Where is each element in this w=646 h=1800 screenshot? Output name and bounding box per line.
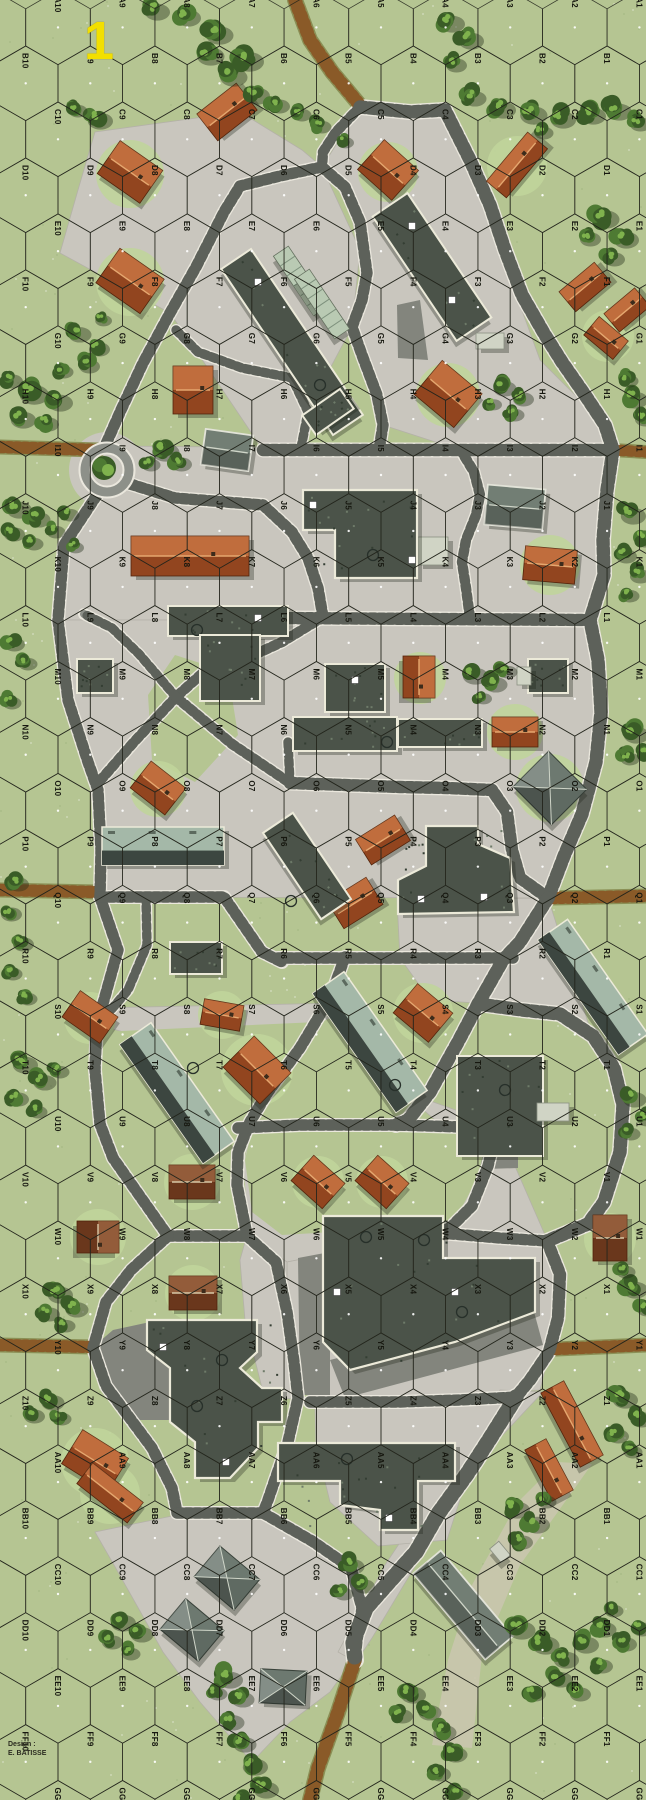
- hex-label-W5: W5: [376, 1228, 385, 1241]
- hex-label-E1: E1: [634, 221, 643, 232]
- hex-label-Q1: Q1: [634, 892, 643, 904]
- hex-label-R4: R4: [408, 948, 417, 959]
- hex-label-O8: O8: [182, 780, 191, 792]
- hex-label-X4: X4: [408, 1284, 417, 1295]
- hex-label-N1: N1: [602, 724, 611, 735]
- hex-label-U10: U10: [53, 1116, 62, 1132]
- hex-label-F6: F6: [279, 277, 288, 287]
- hex-label-U9: U9: [118, 1116, 127, 1127]
- hex-label-Q8: Q8: [182, 892, 191, 904]
- hex-label-CC4: CC4: [441, 1564, 450, 1581]
- hex-label-G3: G3: [505, 333, 514, 345]
- hex-label-V10: V10: [21, 1172, 30, 1187]
- hex-label-BB7: BB7: [215, 1508, 224, 1525]
- board-number: 1: [84, 14, 114, 68]
- hex-label-G1: G1: [634, 333, 643, 345]
- hex-label-DD10: DD10: [21, 1620, 30, 1642]
- hex-label-EE7: EE7: [247, 1676, 256, 1692]
- hex-label-AA4: AA4: [441, 1452, 450, 1469]
- hex-label-FF5: FF5: [344, 1732, 353, 1747]
- hex-label-Q6: Q6: [311, 892, 320, 904]
- hex-label-Q3: Q3: [505, 892, 514, 904]
- hex-label-O3: O3: [505, 780, 514, 792]
- hex-label-Q9: Q9: [118, 892, 127, 904]
- hex-label-C7: C7: [247, 109, 256, 120]
- hex-label-X9: X9: [85, 1284, 94, 1295]
- hex-label-Y2: Y2: [570, 1340, 579, 1351]
- hex-label-P4: P4: [408, 836, 417, 847]
- hex-label-BB2: BB2: [538, 1508, 547, 1525]
- hex-label-H4: H4: [408, 389, 417, 400]
- hex-label-BB10: BB10: [21, 1508, 30, 1530]
- hex-label-EE10: EE10: [53, 1676, 62, 1697]
- hex-label-W7: W7: [247, 1228, 256, 1241]
- hex-label-G10: G10: [53, 333, 62, 349]
- hex-label-K10: K10: [53, 557, 62, 573]
- hex-label-K9: K9: [118, 557, 127, 568]
- hex-label-S2: S2: [570, 1004, 579, 1015]
- hex-label-Y7: Y7: [247, 1340, 256, 1351]
- hex-label-AA9: AA9: [118, 1452, 127, 1469]
- hex-label-X3: X3: [473, 1284, 482, 1295]
- hex-label-R2: R2: [538, 948, 547, 959]
- hex-label-T2: T2: [538, 1060, 547, 1070]
- hex-label-AA1: AA1: [634, 1452, 643, 1469]
- hex-label-Q2: Q2: [570, 892, 579, 904]
- hex-label-DD8: DD8: [150, 1620, 159, 1637]
- hex-label-A7: A7: [247, 0, 256, 8]
- hex-label-U7: U7: [247, 1116, 256, 1127]
- hex-label-N2: N2: [538, 724, 547, 735]
- hex-label-Y9: Y9: [118, 1340, 127, 1351]
- hex-label-Y6: Y6: [311, 1340, 320, 1351]
- hex-label-E10: E10: [53, 221, 62, 236]
- hex-label-CC7: CC7: [247, 1564, 256, 1581]
- credit-line-2: E. BATISSE: [8, 1749, 46, 1758]
- hex-label-W4: W4: [441, 1228, 450, 1241]
- hex-label-O5: O5: [376, 780, 385, 792]
- hex-label-DD6: DD6: [279, 1620, 288, 1637]
- hex-label-Z4: Z4: [408, 1396, 417, 1406]
- hex-label-M7: M7: [247, 669, 256, 681]
- hex-label-F1: F1: [602, 277, 611, 287]
- hex-label-D10: D10: [21, 165, 30, 181]
- hex-label-G5: G5: [376, 333, 385, 345]
- hex-label-A8: A8: [182, 0, 191, 8]
- hex-label-I3: I3: [505, 445, 514, 453]
- hex-label-CC10: CC10: [53, 1564, 62, 1586]
- hex-label-C10: C10: [53, 109, 62, 125]
- hex-label-R7: R7: [215, 948, 224, 959]
- hex-label-N7: N7: [215, 724, 224, 735]
- hex-label-D3: D3: [473, 165, 482, 176]
- hex-label-Z5: Z5: [344, 1396, 353, 1406]
- hex-label-T10: T10: [21, 1060, 30, 1075]
- hex-label-V8: V8: [150, 1172, 159, 1183]
- credit-line-1: Design :: [8, 1740, 46, 1749]
- hex-label-K6: K6: [311, 557, 320, 568]
- hex-label-Z10: Z10: [21, 1396, 30, 1411]
- hex-label-L2: L2: [538, 613, 547, 623]
- hex-label-DD7: DD7: [215, 1620, 224, 1637]
- hex-label-B3: B3: [473, 53, 482, 64]
- hex-label-Z2: Z2: [538, 1396, 547, 1406]
- hex-label-S9: S9: [118, 1004, 127, 1015]
- hex-label-D2: D2: [538, 165, 547, 176]
- hex-label-H1: H1: [602, 389, 611, 400]
- hex-label-I6: I6: [311, 445, 320, 453]
- hex-label-V7: V7: [215, 1172, 224, 1183]
- hex-label-EE2: EE2: [570, 1676, 579, 1692]
- hex-label-J2: J2: [538, 501, 547, 511]
- hex-label-W1: W1: [634, 1228, 643, 1241]
- hex-label-X5: X5: [344, 1284, 353, 1295]
- hex-label-H10: H10: [21, 389, 30, 405]
- hex-label-DD5: DD5: [344, 1620, 353, 1637]
- hex-label-P8: P8: [150, 836, 159, 847]
- hex-label-C5: C5: [376, 109, 385, 120]
- hex-label-V1: V1: [602, 1172, 611, 1183]
- hex-label-D9: D9: [85, 165, 94, 176]
- hex-label-GG5: GG5: [376, 1788, 385, 1800]
- hex-label-BB6: BB6: [279, 1508, 288, 1525]
- hex-label-EE1: EE1: [634, 1676, 643, 1692]
- hex-label-M5: M5: [376, 669, 385, 681]
- hex-label-G9: G9: [118, 333, 127, 345]
- hex-label-C6: C6: [311, 109, 320, 120]
- hex-label-BB3: BB3: [473, 1508, 482, 1525]
- hex-label-J5: J5: [344, 501, 353, 511]
- hex-label-F8: F8: [150, 277, 159, 287]
- hex-label-M9: M9: [118, 669, 127, 681]
- hex-label-S8: S8: [182, 1004, 191, 1015]
- hex-label-AA7: AA7: [247, 1452, 256, 1469]
- hex-label-A1: A1: [634, 0, 643, 8]
- hex-grid-layer: [0, 0, 646, 1800]
- hex-label-M6: M6: [311, 669, 320, 681]
- hex-label-F7: F7: [215, 277, 224, 287]
- hex-label-DD3: DD3: [473, 1620, 482, 1637]
- hex-label-Z9: Z9: [85, 1396, 94, 1406]
- hex-label-R3: R3: [473, 948, 482, 959]
- hex-label-A6: A6: [311, 0, 320, 8]
- map-board: A10A9A8A7A6A5A4A3A2A1B10B9B8B7B6B5B4B3B2…: [0, 0, 646, 1800]
- hex-label-B2: B2: [538, 53, 547, 64]
- hex-label-L8: L8: [150, 613, 159, 623]
- hex-label-M8: M8: [182, 669, 191, 681]
- hex-label-D6: D6: [279, 165, 288, 176]
- hex-label-D7: D7: [215, 165, 224, 176]
- hex-label-J6: J6: [279, 501, 288, 511]
- hex-label-D4: D4: [408, 165, 417, 176]
- hex-label-F3: F3: [473, 277, 482, 287]
- hex-label-GG10: GG10: [53, 1788, 62, 1800]
- hex-label-F10: F10: [21, 277, 30, 292]
- hex-label-U6: U6: [311, 1116, 320, 1127]
- hex-label-BB4: BB4: [408, 1508, 417, 1525]
- hex-label-A3: A3: [505, 0, 514, 8]
- hex-label-CC8: CC8: [182, 1564, 191, 1581]
- hex-label-U3: U3: [505, 1116, 514, 1127]
- hex-label-P9: P9: [85, 836, 94, 847]
- hex-label-H8: H8: [150, 389, 159, 400]
- hex-label-B5: B5: [344, 53, 353, 64]
- hex-label-K8: K8: [182, 557, 191, 568]
- hex-label-N9: N9: [85, 724, 94, 735]
- hex-label-L10: L10: [21, 613, 30, 628]
- hex-label-V5: V5: [344, 1172, 353, 1183]
- hex-label-CC1: CC1: [634, 1564, 643, 1581]
- hex-label-C9: C9: [118, 109, 127, 120]
- hex-label-L4: L4: [408, 613, 417, 623]
- hex-label-EE4: EE4: [441, 1676, 450, 1692]
- hex-label-R5: R5: [344, 948, 353, 959]
- hex-label-B7: B7: [215, 53, 224, 64]
- hex-label-AA10: AA10: [53, 1452, 62, 1474]
- hex-label-BB9: BB9: [85, 1508, 94, 1525]
- hex-label-L1: L1: [602, 613, 611, 623]
- hex-label-J4: J4: [408, 501, 417, 511]
- hex-label-W8: W8: [182, 1228, 191, 1241]
- hex-label-C4: C4: [441, 109, 450, 120]
- hex-label-N4: N4: [408, 724, 417, 735]
- hex-label-O9: O9: [118, 780, 127, 792]
- hex-label-G8: G8: [182, 333, 191, 345]
- hex-label-AA8: AA8: [182, 1452, 191, 1469]
- hex-label-FF2: FF2: [538, 1732, 547, 1747]
- hex-label-H5: H5: [344, 389, 353, 400]
- hex-label-F4: F4: [408, 277, 417, 287]
- hex-label-AA3: AA3: [505, 1452, 514, 1469]
- hex-label-W2: W2: [570, 1228, 579, 1241]
- hex-label-J1: J1: [602, 501, 611, 511]
- hex-label-I2: I2: [570, 445, 579, 453]
- hex-label-C3: C3: [505, 109, 514, 120]
- hex-label-K5: K5: [376, 557, 385, 568]
- hex-label-Q4: Q4: [441, 892, 450, 904]
- hex-label-M10: M10: [53, 669, 62, 686]
- hex-label-Z1: Z1: [602, 1396, 611, 1406]
- hex-label-G7: G7: [247, 333, 256, 345]
- hex-label-H2: H2: [538, 389, 547, 400]
- hex-label-F5: F5: [344, 277, 353, 287]
- hex-label-Z7: Z7: [215, 1396, 224, 1406]
- hex-label-J3: J3: [473, 501, 482, 511]
- hex-label-E6: E6: [311, 221, 320, 232]
- hex-label-H7: H7: [215, 389, 224, 400]
- hex-label-W9: W9: [118, 1228, 127, 1241]
- hex-label-O2: O2: [570, 780, 579, 792]
- hex-label-H3: H3: [473, 389, 482, 400]
- hex-label-K3: K3: [505, 557, 514, 568]
- hex-label-L5: L5: [344, 613, 353, 623]
- hex-label-M1: M1: [634, 669, 643, 681]
- hex-label-T3: T3: [473, 1060, 482, 1070]
- hex-label-O7: O7: [247, 780, 256, 792]
- hex-label-X8: X8: [150, 1284, 159, 1295]
- hex-label-B6: B6: [279, 53, 288, 64]
- hex-label-H6: H6: [279, 389, 288, 400]
- map-svg: A10A9A8A7A6A5A4A3A2A1B10B9B8B7B6B5B4B3B2…: [0, 0, 646, 1800]
- hex-label-E7: E7: [247, 221, 256, 232]
- hex-label-V9: V9: [85, 1172, 94, 1183]
- hex-label-I4: I4: [441, 445, 450, 453]
- hex-label-A10: A10: [53, 0, 62, 13]
- hex-label-G6: G6: [311, 333, 320, 345]
- hex-label-X2: X2: [538, 1284, 547, 1295]
- hex-label-Q5: Q5: [376, 892, 385, 904]
- hex-label-M4: M4: [441, 669, 450, 681]
- hex-label-Z6: Z6: [279, 1396, 288, 1406]
- hex-label-B4: B4: [408, 53, 417, 64]
- hex-label-P6: P6: [279, 836, 288, 847]
- hex-label-L9: L9: [85, 613, 94, 623]
- hex-label-BB1: BB1: [602, 1508, 611, 1525]
- hex-label-B10: B10: [21, 53, 30, 69]
- hex-label-GG9: GG9: [118, 1788, 127, 1800]
- hex-label-X7: X7: [215, 1284, 224, 1295]
- hex-label-I8: I8: [182, 445, 191, 453]
- hex-label-EE5: EE5: [376, 1676, 385, 1692]
- hex-label-AA6: AA6: [311, 1452, 320, 1469]
- hex-label-U8: U8: [182, 1116, 191, 1127]
- hex-label-E3: E3: [505, 221, 514, 232]
- hex-label-CC6: CC6: [311, 1564, 320, 1581]
- hex-label-FF1: FF1: [602, 1732, 611, 1747]
- hex-label-S5: S5: [376, 1004, 385, 1015]
- designer-credit: Design : E. BATISSE: [8, 1740, 46, 1758]
- hex-label-Y10: Y10: [53, 1340, 62, 1355]
- hex-label-J9: J9: [85, 501, 94, 511]
- hex-label-B1: B1: [602, 53, 611, 64]
- hex-label-FF7: FF7: [215, 1732, 224, 1747]
- hex-label-J7: J7: [215, 501, 224, 511]
- hex-label-E5: E5: [376, 221, 385, 232]
- hex-label-DD1: DD1: [602, 1620, 611, 1637]
- hex-label-F9: F9: [85, 277, 94, 287]
- hex-label-Y1: Y1: [634, 1340, 643, 1351]
- hex-label-P10: P10: [21, 836, 30, 851]
- hex-label-R8: R8: [150, 948, 159, 959]
- hex-label-X6: X6: [279, 1284, 288, 1295]
- hex-label-P1: P1: [602, 836, 611, 847]
- hex-label-T8: T8: [150, 1060, 159, 1070]
- hex-label-CC3: CC3: [505, 1564, 514, 1581]
- hex-label-T6: T6: [279, 1060, 288, 1070]
- hex-label-I10: I10: [53, 445, 62, 457]
- hex-label-D5: D5: [344, 165, 353, 176]
- hex-label-GG3: GG3: [505, 1788, 514, 1800]
- hex-label-X10: X10: [21, 1284, 30, 1299]
- hex-label-R6: R6: [279, 948, 288, 959]
- hex-label-K7: K7: [247, 557, 256, 568]
- hex-label-A2: A2: [570, 0, 579, 8]
- hex-label-Z3: Z3: [473, 1396, 482, 1406]
- hex-label-I7: I7: [247, 445, 256, 453]
- hex-label-EE6: EE6: [311, 1676, 320, 1692]
- hex-label-O10: O10: [53, 780, 62, 796]
- hex-label-C1: C1: [634, 109, 643, 120]
- hex-label-S1: S1: [634, 1004, 643, 1015]
- hex-label-V3: V3: [473, 1172, 482, 1183]
- hex-label-H9: H9: [85, 389, 94, 400]
- hex-label-GG8: GG8: [182, 1788, 191, 1800]
- hex-label-V6: V6: [279, 1172, 288, 1183]
- hex-label-E2: E2: [570, 221, 579, 232]
- hex-label-Z8: Z8: [150, 1396, 159, 1406]
- hex-label-GG7: GG7: [247, 1788, 256, 1800]
- hex-label-DD9: DD9: [85, 1620, 94, 1637]
- hex-label-T4: T4: [408, 1060, 417, 1070]
- hex-label-W6: W6: [311, 1228, 320, 1241]
- hex-label-A9: A9: [118, 0, 127, 8]
- hex-label-GG1: GG1: [634, 1788, 643, 1800]
- hex-label-GG2: GG2: [570, 1788, 579, 1800]
- hex-label-AA2: AA2: [570, 1452, 579, 1469]
- hex-label-B8: B8: [150, 53, 159, 64]
- hex-label-Y8: Y8: [182, 1340, 191, 1351]
- hex-label-V4: V4: [408, 1172, 417, 1183]
- hex-label-K4: K4: [441, 557, 450, 568]
- hex-label-AA5: AA5: [376, 1452, 385, 1469]
- hex-label-N5: N5: [344, 724, 353, 735]
- hex-label-U1: U1: [634, 1116, 643, 1127]
- hex-label-D8: D8: [150, 165, 159, 176]
- hex-label-T5: T5: [344, 1060, 353, 1070]
- hex-label-BB5: BB5: [344, 1508, 353, 1525]
- hex-label-L6: L6: [279, 613, 288, 623]
- hex-label-W10: W10: [53, 1228, 62, 1246]
- hex-label-FF8: FF8: [150, 1732, 159, 1747]
- hex-label-A5: A5: [376, 0, 385, 8]
- hex-label-C8: C8: [182, 109, 191, 120]
- hex-label-F2: F2: [538, 277, 547, 287]
- hex-label-D1: D1: [602, 165, 611, 176]
- hex-label-O4: O4: [441, 780, 450, 792]
- hex-label-GG4: GG4: [441, 1788, 450, 1800]
- hex-label-T9: T9: [85, 1060, 94, 1070]
- hex-label-FF3: FF3: [473, 1732, 482, 1747]
- hex-label-CC2: CC2: [570, 1564, 579, 1581]
- hex-label-K2: K2: [570, 557, 579, 568]
- hex-label-N6: N6: [279, 724, 288, 735]
- hex-label-I9: I9: [118, 445, 127, 453]
- hex-label-DD2: DD2: [538, 1620, 547, 1637]
- hex-label-W3: W3: [505, 1228, 514, 1241]
- hex-label-FF4: FF4: [408, 1732, 417, 1747]
- hex-label-R10: R10: [21, 948, 30, 964]
- hex-label-FF9: FF9: [85, 1732, 94, 1747]
- hex-label-EE8: EE8: [182, 1676, 191, 1692]
- hex-label-P2: P2: [538, 836, 547, 847]
- hex-label-E9: E9: [118, 221, 127, 232]
- hex-label-S6: S6: [311, 1004, 320, 1015]
- hex-label-S7: S7: [247, 1004, 256, 1015]
- hex-label-A4: A4: [441, 0, 450, 8]
- hex-label-EE3: EE3: [505, 1676, 514, 1692]
- hex-label-G2: G2: [570, 333, 579, 345]
- hex-label-O6: O6: [311, 780, 320, 792]
- hex-label-P5: P5: [344, 836, 353, 847]
- hex-label-T1: T1: [602, 1060, 611, 1070]
- hex-label-T7: T7: [215, 1060, 224, 1070]
- hex-label-N8: N8: [150, 724, 159, 735]
- hex-label-M2: M2: [570, 669, 579, 681]
- hex-label-I5: I5: [376, 445, 385, 453]
- hex-label-J10: J10: [21, 501, 30, 515]
- hex-label-S4: S4: [441, 1004, 450, 1015]
- hex-label-Y4: Y4: [441, 1340, 450, 1351]
